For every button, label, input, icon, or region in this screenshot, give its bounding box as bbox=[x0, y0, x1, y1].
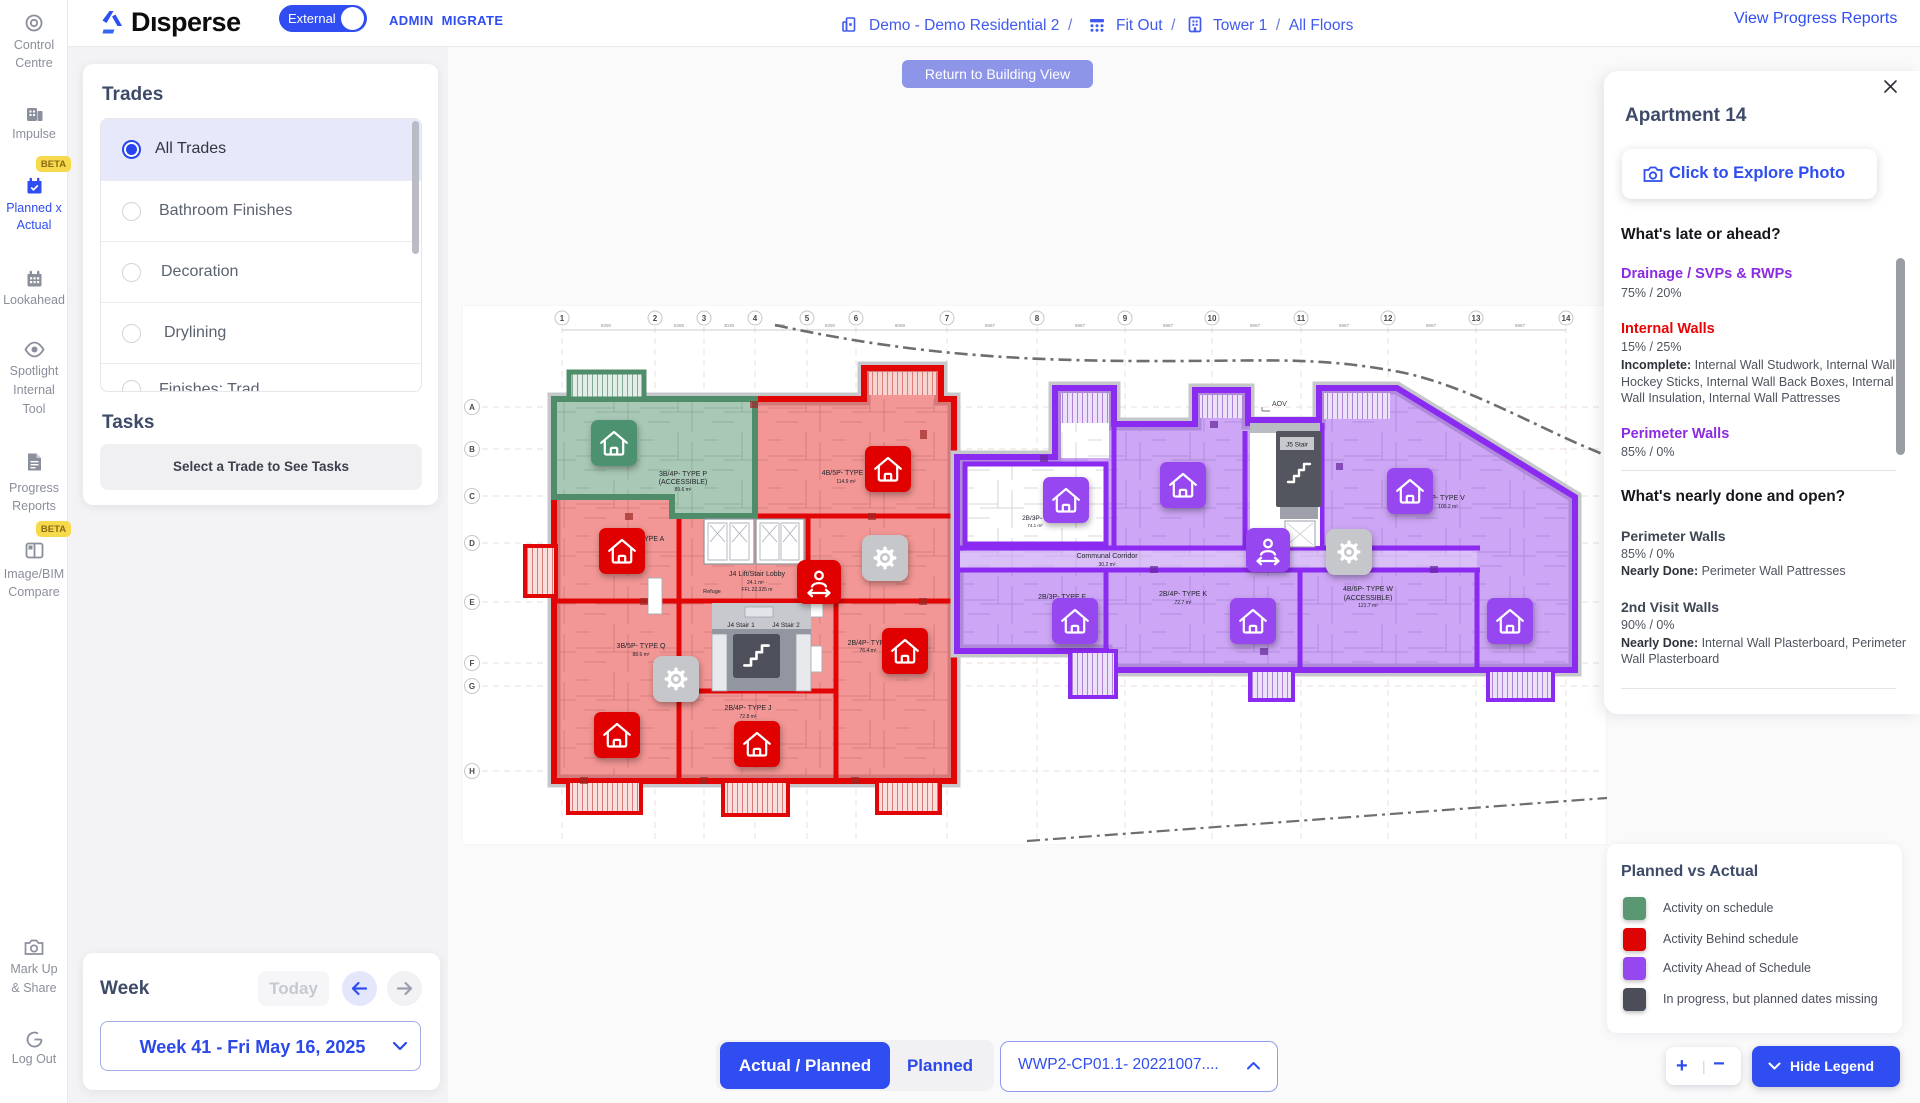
svg-text:F: F bbox=[470, 659, 475, 668]
svg-text:2B/4P- TYPE K: 2B/4P- TYPE K bbox=[1159, 591, 1207, 598]
svg-text:6250: 6250 bbox=[601, 323, 612, 328]
svg-text:10: 10 bbox=[1208, 314, 1217, 323]
svg-text:3B/4P- TYPE P: 3B/4P- TYPE P bbox=[659, 471, 707, 478]
svg-text:121.7 m²: 121.7 m² bbox=[1358, 603, 1378, 609]
svg-text:72.7 m²: 72.7 m² bbox=[1175, 600, 1192, 606]
svg-text:14: 14 bbox=[1562, 314, 1571, 323]
svg-text:3: 3 bbox=[702, 314, 707, 323]
svg-text:(ACCESSIBLE): (ACCESSIBLE) bbox=[659, 479, 708, 486]
svg-text:72.8 m²: 72.8 m² bbox=[740, 714, 757, 720]
svg-text:4B/6P- TYPE W: 4B/6P- TYPE W bbox=[1343, 586, 1393, 593]
svg-text:9: 9 bbox=[1123, 314, 1128, 323]
svg-text:5967: 5967 bbox=[1426, 323, 1437, 328]
svg-text:J5 Stair: J5 Stair bbox=[1286, 442, 1309, 449]
svg-text:8: 8 bbox=[1035, 314, 1040, 323]
svg-text:Refuge: Refuge bbox=[703, 589, 721, 595]
svg-text:6: 6 bbox=[854, 314, 859, 323]
svg-text:24.1 m² ·: 24.1 m² · bbox=[747, 580, 767, 586]
svg-text:100.2 m²: 100.2 m² bbox=[1438, 504, 1458, 510]
svg-text:AOV: AOV bbox=[1272, 401, 1287, 408]
svg-text:1: 1 bbox=[560, 314, 565, 323]
svg-text:J4 Stair 2: J4 Stair 2 bbox=[772, 622, 800, 629]
svg-text:6250: 6250 bbox=[825, 323, 836, 328]
svg-text:2B/4P- TYP: 2B/4P- TYP bbox=[848, 640, 885, 647]
svg-text:12: 12 bbox=[1384, 314, 1393, 323]
svg-text:89.6 m²: 89.6 m² bbox=[675, 487, 692, 493]
svg-text:D: D bbox=[469, 539, 475, 548]
svg-text:6059: 6059 bbox=[895, 323, 906, 328]
svg-text:5967: 5967 bbox=[1163, 323, 1174, 328]
svg-text:11: 11 bbox=[1297, 314, 1306, 323]
svg-text:H: H bbox=[469, 767, 475, 776]
svg-text:C: C bbox=[469, 492, 475, 501]
svg-text:88.6 m²: 88.6 m² bbox=[633, 652, 650, 658]
svg-text:30.2 m²: 30.2 m² bbox=[1099, 562, 1116, 568]
svg-text:74.1 m²: 74.1 m² bbox=[1027, 523, 1043, 528]
svg-text:G: G bbox=[469, 682, 475, 691]
svg-text:5967: 5967 bbox=[1250, 323, 1261, 328]
svg-text:114.9 m²: 114.9 m² bbox=[836, 479, 856, 485]
svg-text:5967: 5967 bbox=[1515, 323, 1526, 328]
svg-text:P- TYPE V: P- TYPE V bbox=[1431, 495, 1465, 502]
svg-text:5967: 5967 bbox=[1339, 323, 1350, 328]
svg-text:3B/5P- TYPE Q: 3B/5P- TYPE Q bbox=[617, 643, 666, 650]
svg-text:B: B bbox=[469, 445, 475, 454]
svg-text:4B/5P- TYPE D: 4B/5P- TYPE D bbox=[822, 470, 871, 477]
svg-text:2: 2 bbox=[653, 314, 658, 323]
svg-text:J4 Stair 1: J4 Stair 1 bbox=[727, 622, 755, 629]
svg-text:5967: 5967 bbox=[1075, 323, 1086, 328]
svg-text:13: 13 bbox=[1472, 314, 1481, 323]
svg-text:2B/4P- TYPE J: 2B/4P- TYPE J bbox=[725, 705, 772, 712]
svg-text:2B/3P-: 2B/3P- bbox=[1022, 515, 1042, 522]
svg-text:7: 7 bbox=[945, 314, 950, 323]
svg-text:3035: 3035 bbox=[724, 323, 735, 328]
svg-text:(ACCESSIBLE): (ACCESSIBLE) bbox=[1344, 595, 1393, 602]
svg-text:76.4 m²: 76.4 m² bbox=[860, 648, 877, 654]
svg-text:E: E bbox=[469, 598, 475, 607]
svg-text:FFL 22.325 m: FFL 22.325 m bbox=[742, 587, 773, 593]
svg-text:J4 Lift/Stair Lobby: J4 Lift/Stair Lobby bbox=[729, 571, 786, 578]
svg-text:4: 4 bbox=[753, 314, 758, 323]
svg-text:5967: 5967 bbox=[985, 323, 996, 328]
svg-text:5: 5 bbox=[805, 314, 810, 323]
svg-text:A: A bbox=[469, 403, 475, 412]
svg-text:5365: 5365 bbox=[674, 323, 685, 328]
svg-text:Communal Corridor: Communal Corridor bbox=[1076, 553, 1138, 560]
